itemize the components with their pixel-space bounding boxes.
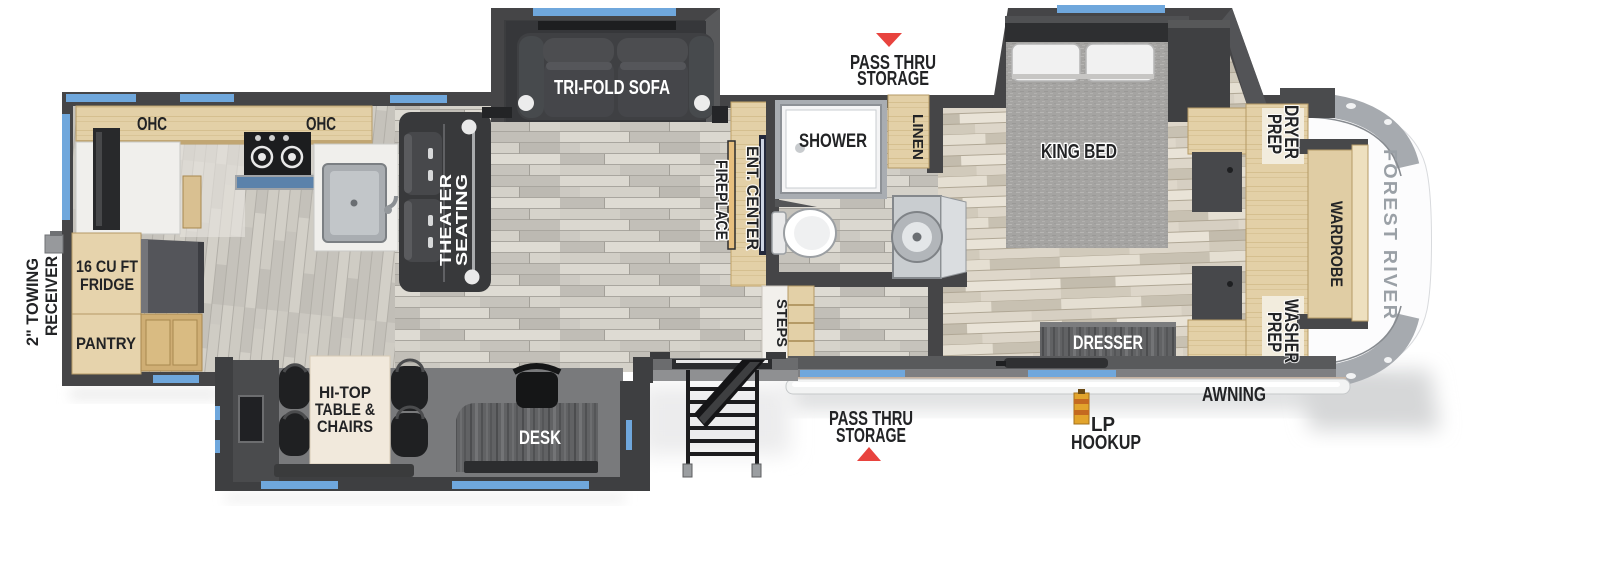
svg-text:KING BED: KING BED bbox=[1041, 141, 1117, 163]
svg-text:PREP: PREP bbox=[1263, 114, 1284, 154]
svg-text:ENT. CENTER: ENT. CENTER bbox=[743, 146, 762, 250]
svg-text:STORAGE: STORAGE bbox=[836, 425, 906, 447]
svg-text:FIREPLACE: FIREPLACE bbox=[712, 160, 731, 240]
svg-text:SEATING: SEATING bbox=[454, 174, 471, 266]
svg-text:LINEN: LINEN bbox=[909, 114, 926, 160]
svg-text:OHC: OHC bbox=[137, 114, 167, 134]
svg-text:16 CU FT: 16 CU FT bbox=[76, 257, 139, 276]
svg-text:STORAGE: STORAGE bbox=[857, 68, 929, 90]
svg-text:FOREST RIVER: FOREST RIVER bbox=[1380, 149, 1400, 321]
svg-text:FRIDGE: FRIDGE bbox=[80, 275, 134, 294]
svg-text:TRI-FOLD SOFA: TRI-FOLD SOFA bbox=[554, 77, 670, 99]
svg-text:2" TOWING: 2" TOWING bbox=[23, 258, 42, 346]
svg-text:HOOKUP: HOOKUP bbox=[1071, 432, 1141, 454]
svg-text:SHOWER: SHOWER bbox=[799, 131, 867, 152]
svg-text:PANTRY: PANTRY bbox=[76, 334, 137, 353]
svg-text:THEATER: THEATER bbox=[438, 173, 455, 266]
svg-text:WARDROBE: WARDROBE bbox=[1327, 201, 1346, 287]
svg-text:PREP: PREP bbox=[1263, 312, 1284, 352]
svg-text:STEPS: STEPS bbox=[773, 299, 790, 347]
svg-text:DRESSER: DRESSER bbox=[1073, 333, 1143, 354]
svg-text:OHC: OHC bbox=[306, 114, 336, 134]
svg-text:RECEIVER: RECEIVER bbox=[42, 256, 61, 336]
svg-text:AWNING: AWNING bbox=[1202, 384, 1266, 406]
svg-text:DESK: DESK bbox=[519, 428, 561, 449]
svg-text:CHAIRS: CHAIRS bbox=[317, 417, 373, 436]
